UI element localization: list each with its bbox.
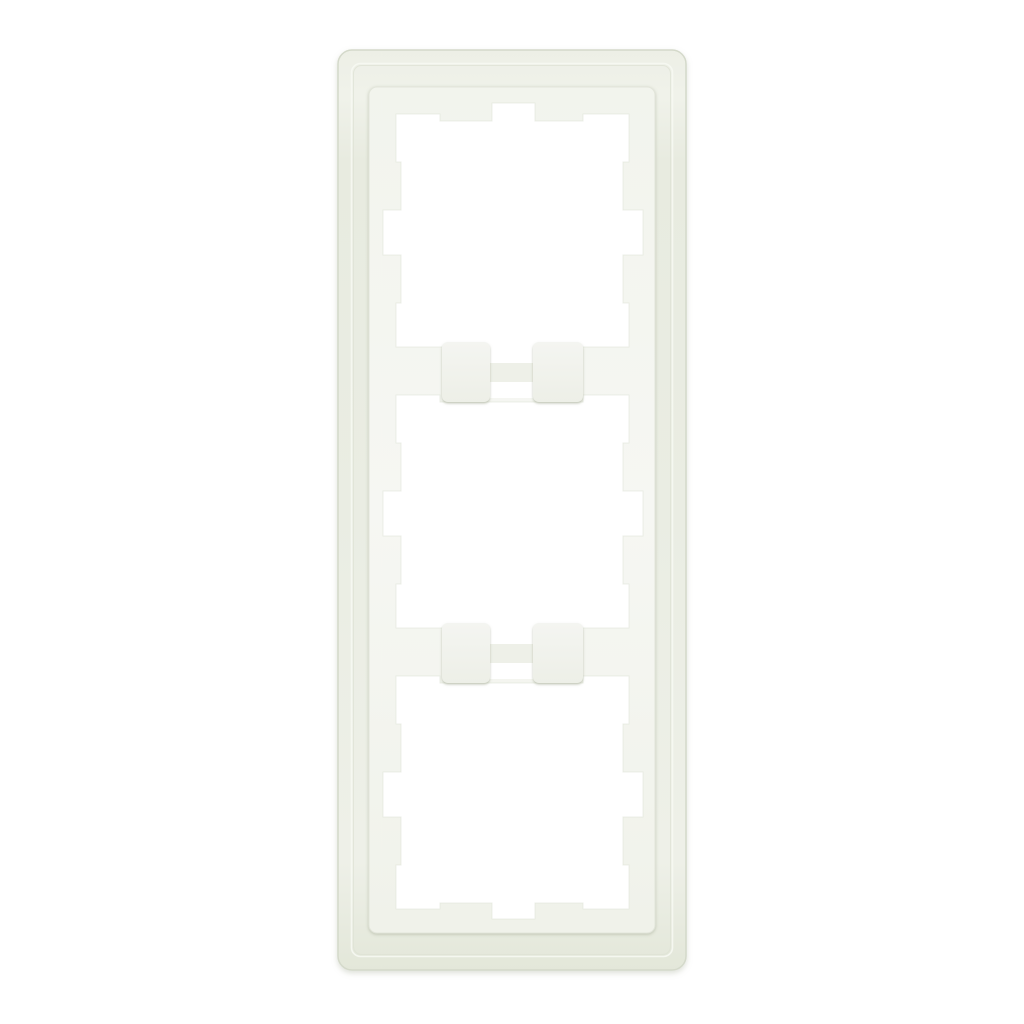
cutouts	[383, 103, 643, 919]
bridge-bottom-tab-left	[442, 623, 490, 683]
opening-1	[383, 103, 643, 347]
product-photo	[0, 0, 1024, 1024]
product-image	[0, 0, 1024, 1024]
bridge-top-tab-left	[442, 342, 490, 402]
opening-2	[383, 395, 643, 628]
bridge-bottom-connector-bar	[488, 644, 535, 663]
bridge-top-tab-right	[533, 342, 583, 402]
switch-frame	[338, 50, 686, 970]
bridge-top-connector-bar	[488, 363, 535, 382]
opening-3	[383, 676, 643, 919]
bridge-bottom-tab-right	[533, 623, 583, 683]
